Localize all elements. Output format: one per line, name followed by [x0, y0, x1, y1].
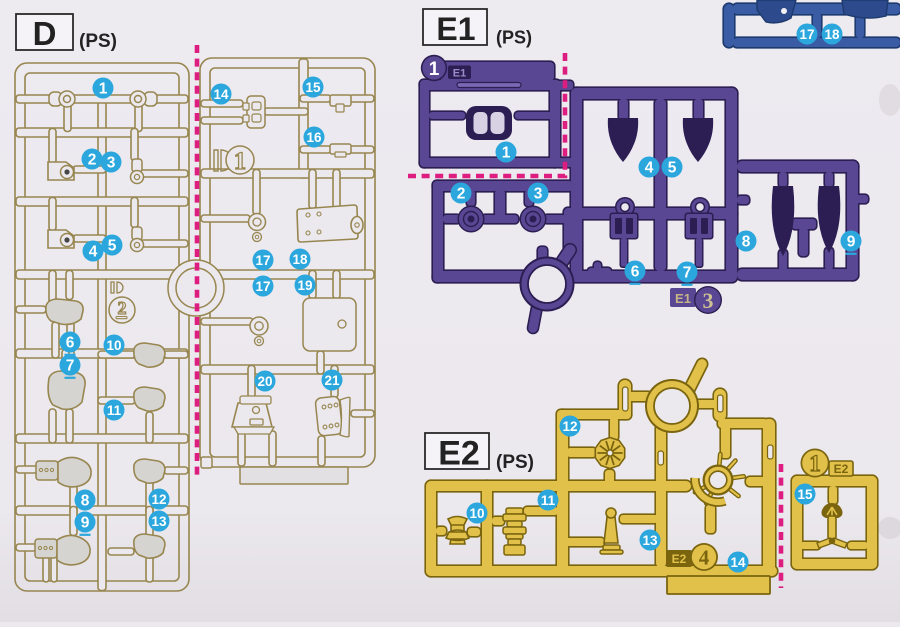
svg-text:E2: E2	[438, 435, 480, 473]
svg-text:21: 21	[324, 373, 340, 388]
svg-text:2: 2	[118, 298, 127, 318]
svg-text:(PS): (PS)	[496, 28, 532, 48]
svg-text:4: 4	[645, 160, 654, 177]
svg-text:10: 10	[106, 338, 121, 353]
svg-text:1: 1	[429, 59, 440, 80]
svg-text:3: 3	[534, 186, 543, 203]
svg-text:8: 8	[81, 493, 90, 510]
svg-text:E2: E2	[672, 552, 687, 566]
svg-text:17: 17	[255, 253, 270, 268]
svg-text:(PS): (PS)	[79, 31, 117, 52]
svg-text:1: 1	[234, 148, 247, 175]
svg-text:18: 18	[292, 252, 308, 267]
svg-text:15: 15	[797, 487, 813, 502]
svg-text:3: 3	[703, 288, 714, 313]
svg-text:(PS): (PS)	[496, 452, 534, 473]
svg-text:2: 2	[88, 152, 97, 169]
svg-text:16: 16	[306, 130, 322, 145]
svg-text:4: 4	[89, 244, 98, 261]
svg-text:E2: E2	[834, 462, 849, 476]
svg-text:4: 4	[699, 546, 710, 570]
svg-text:5: 5	[668, 160, 677, 177]
svg-text:9: 9	[81, 515, 90, 532]
svg-text:D: D	[33, 15, 57, 52]
svg-text:3: 3	[107, 155, 116, 172]
svg-text:13: 13	[642, 533, 658, 548]
svg-text:E1: E1	[675, 291, 691, 306]
svg-text:12: 12	[151, 492, 166, 507]
svg-text:9: 9	[847, 234, 856, 251]
svg-text:20: 20	[257, 374, 272, 389]
svg-text:14: 14	[730, 555, 746, 570]
svg-text:17: 17	[799, 27, 814, 42]
svg-text:7: 7	[66, 358, 75, 375]
svg-text:5: 5	[108, 238, 117, 255]
svg-text:E1: E1	[453, 68, 466, 80]
svg-text:17: 17	[255, 279, 270, 294]
svg-text:11: 11	[541, 493, 556, 508]
svg-text:15: 15	[305, 80, 321, 95]
svg-text:1: 1	[502, 145, 511, 162]
svg-text:1: 1	[809, 451, 821, 476]
svg-text:1: 1	[99, 81, 108, 98]
svg-text:12: 12	[562, 419, 577, 434]
svg-text:18: 18	[824, 27, 840, 42]
svg-text:19: 19	[297, 278, 312, 293]
svg-text:10: 10	[469, 506, 484, 521]
svg-text:2: 2	[457, 186, 466, 203]
svg-text:E1: E1	[436, 11, 475, 47]
svg-text:13: 13	[151, 514, 167, 529]
svg-text:6: 6	[66, 335, 75, 352]
svg-text:7: 7	[683, 265, 692, 282]
svg-text:6: 6	[631, 264, 640, 281]
svg-text:11: 11	[107, 403, 122, 418]
svg-text:8: 8	[742, 234, 751, 251]
svg-text:14: 14	[213, 87, 229, 102]
